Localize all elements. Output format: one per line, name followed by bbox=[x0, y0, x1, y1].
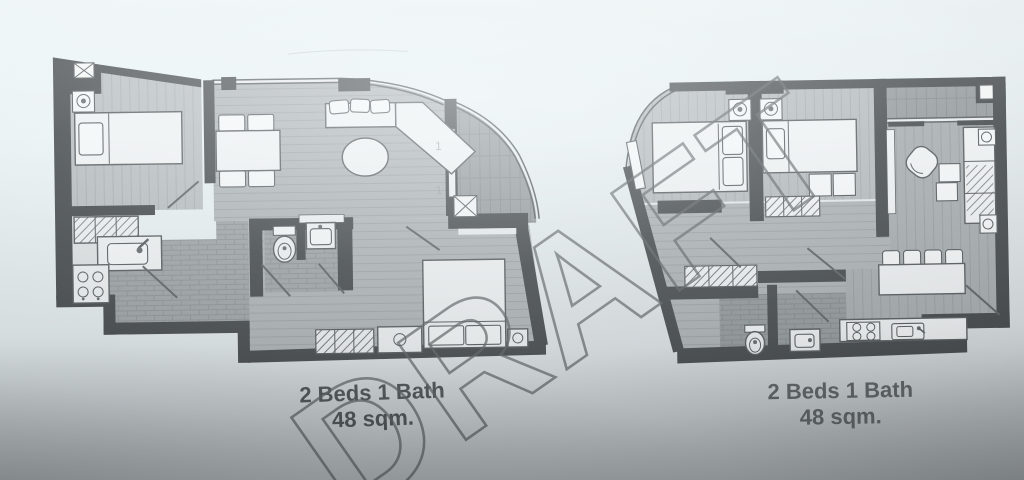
floorplan-photo: 1 1 bbox=[0, 0, 1024, 480]
caption-right-plan: 2 Beds 1 Bath 48 sqm. bbox=[738, 376, 944, 432]
side-table bbox=[378, 326, 422, 353]
bed-single bbox=[762, 119, 857, 173]
pencil-mark-2: 1 bbox=[436, 183, 443, 197]
window-vent-box bbox=[74, 63, 94, 78]
coffee-table-round bbox=[342, 138, 389, 177]
nightstand bbox=[508, 329, 528, 347]
bench-wardrobe bbox=[765, 196, 819, 217]
caption-right-line2: 48 sqm. bbox=[738, 402, 943, 432]
washer-icon bbox=[72, 91, 94, 112]
caption-left-plan: 2 Beds 1 Bath 48 sqm. bbox=[269, 376, 476, 435]
sofa bbox=[963, 127, 997, 234]
stove-icon bbox=[73, 265, 110, 303]
washer-icon bbox=[729, 99, 751, 120]
dining-set bbox=[216, 114, 281, 187]
nightstand bbox=[809, 174, 831, 196]
caption-right-line1: 2 Beds 1 Bath bbox=[738, 376, 943, 406]
floorplan-left-drawing: 1 1 bbox=[48, 45, 552, 377]
kitchen-sink bbox=[892, 323, 925, 340]
nightstand bbox=[833, 173, 855, 195]
pencil-mark-1: 1 bbox=[435, 139, 442, 153]
floorplan-right-drawing bbox=[615, 75, 1020, 377]
bed-double bbox=[652, 121, 747, 193]
dryer-icon bbox=[760, 99, 782, 120]
bench-tv-console bbox=[316, 329, 374, 354]
side-table bbox=[936, 183, 957, 201]
toilet-icon bbox=[745, 325, 766, 355]
bench-tv-console bbox=[685, 265, 757, 287]
side-table bbox=[939, 164, 960, 182]
bed-single bbox=[75, 112, 183, 165]
toilet-icon bbox=[273, 226, 296, 262]
bathroom-sink bbox=[790, 329, 820, 352]
bed-double bbox=[423, 259, 506, 348]
stove-icon bbox=[847, 322, 880, 341]
ac-unit-box bbox=[454, 196, 477, 217]
